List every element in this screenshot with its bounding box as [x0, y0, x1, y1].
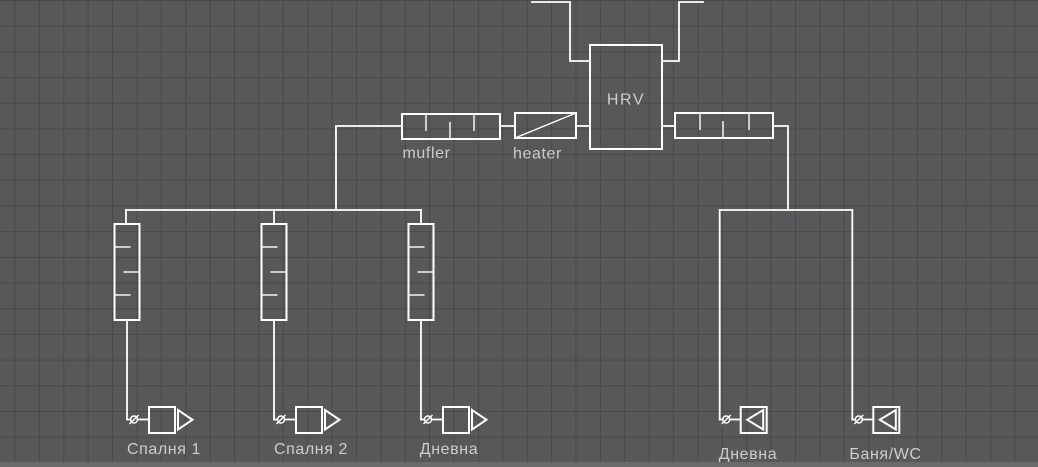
exhaust-air-duct[interactable]: [662, 2, 703, 61]
branch-silencer-3[interactable]: [409, 224, 434, 320]
cad-canvas[interactable]: HRV mufler heater: [0, 0, 1038, 467]
outdoor-air-duct[interactable]: [532, 2, 590, 61]
supply-terminal-1[interactable]: [127, 407, 193, 433]
room-label-banya-wc: Баня/WC: [849, 446, 921, 463]
diffuser-box-icon[interactable]: [296, 407, 322, 433]
branch-silencer-2[interactable]: [262, 224, 287, 320]
diffuser-box-icon[interactable]: [443, 407, 469, 433]
branch-silencer-1[interactable]: [115, 224, 140, 320]
supply-terminal-3[interactable]: [421, 407, 487, 433]
hrv-unit[interactable]: HRV: [590, 45, 662, 149]
flow-left-triangle-icon[interactable]: [747, 410, 763, 430]
supply-muffler-label: mufler: [402, 145, 450, 162]
flow-right-triangle-icon[interactable]: [178, 410, 193, 430]
diffuser-box-icon[interactable]: [149, 407, 175, 433]
extract-muffler[interactable]: [675, 113, 773, 138]
heater-unit[interactable]: heater: [513, 113, 576, 163]
hrv-label: HRV: [607, 92, 645, 109]
flow-left-triangle-icon[interactable]: [880, 410, 896, 430]
room-label-spalnya-2: Спалня 2: [274, 441, 348, 458]
flow-right-triangle-icon[interactable]: [472, 410, 487, 430]
room-label-dnevna-extract: Дневна: [719, 446, 777, 463]
room-label-dnevna-supply: Дневна: [420, 441, 478, 458]
silencer-icon[interactable]: [675, 113, 773, 138]
flow-right-triangle-icon[interactable]: [325, 410, 340, 430]
supply-muffler[interactable]: mufler: [402, 114, 500, 162]
ventilation-schematic: HRV mufler heater: [0, 0, 1038, 467]
supply-duct-lines: [126, 126, 590, 420]
silencer-icon[interactable]: [402, 114, 500, 139]
heater-label: heater: [513, 146, 562, 163]
canvas-bottom-edge: [0, 462, 1038, 467]
extract-terminal-1[interactable]: [720, 407, 767, 433]
room-label-spalnya-1: Спалня 1: [127, 441, 201, 458]
supply-terminal-2[interactable]: [274, 407, 340, 433]
extract-duct-lines: [662, 126, 852, 420]
extract-terminal-2[interactable]: [852, 407, 899, 433]
